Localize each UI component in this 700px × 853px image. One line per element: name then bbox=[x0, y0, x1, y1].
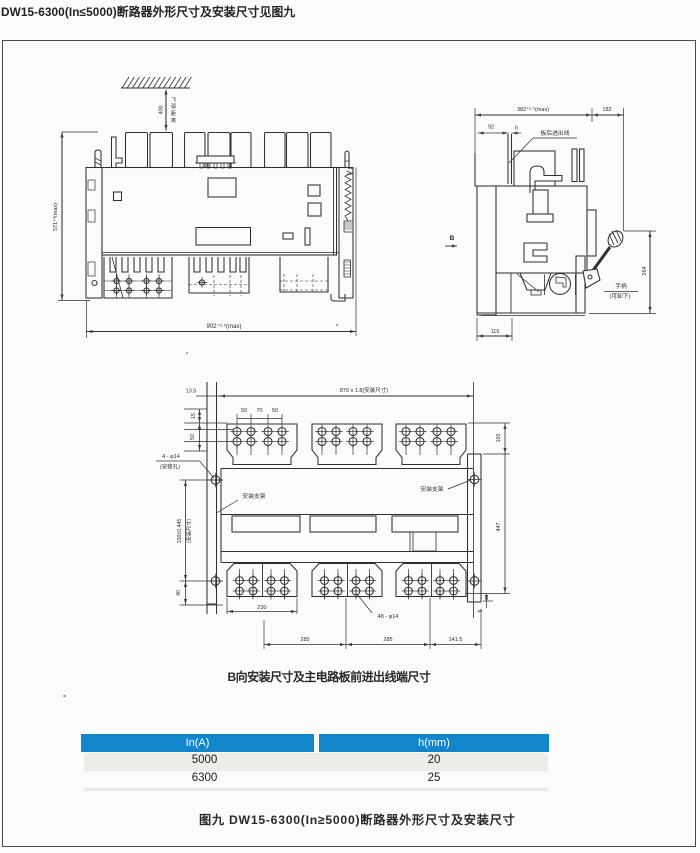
svg-text:285: 285 bbox=[300, 637, 309, 643]
svg-text:870 x 1.8(安装尺寸): 870 x 1.8(安装尺寸) bbox=[340, 386, 388, 394]
svg-text:50: 50 bbox=[272, 408, 278, 414]
svg-text:B: B bbox=[450, 235, 455, 242]
svg-text:离: 离 bbox=[171, 116, 176, 124]
svg-text:15: 15 bbox=[191, 413, 197, 419]
svg-text:141.5: 141.5 bbox=[449, 637, 463, 643]
svg-text:182: 182 bbox=[602, 107, 611, 113]
svg-text:230: 230 bbox=[257, 605, 266, 611]
svg-text:(安装尺寸): (安装尺寸) bbox=[185, 519, 193, 543]
svg-text:92: 92 bbox=[488, 125, 494, 131]
svg-text:弧: 弧 bbox=[171, 102, 177, 110]
svg-text:安装支架: 安装支架 bbox=[420, 485, 443, 493]
svg-text:70: 70 bbox=[256, 408, 262, 414]
svg-text:板后进出线: 板后进出线 bbox=[541, 129, 570, 137]
svg-text:902⁺³·⁵(max): 902⁺³·⁵(max) bbox=[207, 323, 242, 330]
svg-text:571⁺³(max): 571⁺³(max) bbox=[52, 203, 59, 231]
svg-text:40: 40 bbox=[176, 590, 182, 596]
svg-text:4 - φ14: 4 - φ14 bbox=[162, 454, 180, 460]
svg-text:116: 116 bbox=[491, 329, 500, 335]
svg-text:安装支架: 安装支架 bbox=[242, 492, 265, 500]
svg-text:447: 447 bbox=[496, 523, 502, 532]
svg-text:382⁺²·⁵(max): 382⁺²·⁵(max) bbox=[517, 106, 549, 113]
svg-text:50: 50 bbox=[190, 434, 196, 440]
svg-text:330±0.445: 330±0.445 bbox=[177, 519, 183, 544]
svg-text:48 - φ14: 48 - φ14 bbox=[378, 614, 399, 620]
svg-text:(安装孔): (安装孔) bbox=[160, 463, 180, 471]
svg-text:50: 50 bbox=[241, 408, 247, 414]
svg-text:距: 距 bbox=[171, 110, 176, 117]
svg-text:264: 264 bbox=[642, 266, 648, 275]
svg-text:100: 100 bbox=[496, 434, 502, 443]
svg-text:飞: 飞 bbox=[171, 96, 176, 103]
svg-text:13.5: 13.5 bbox=[186, 389, 197, 395]
svg-text:285: 285 bbox=[383, 637, 392, 643]
svg-text:400: 400 bbox=[159, 105, 165, 114]
svg-text:手柄: 手柄 bbox=[615, 282, 627, 290]
svg-text:h: h bbox=[515, 126, 518, 132]
svg-text:(可卸下): (可卸下) bbox=[609, 292, 630, 300]
